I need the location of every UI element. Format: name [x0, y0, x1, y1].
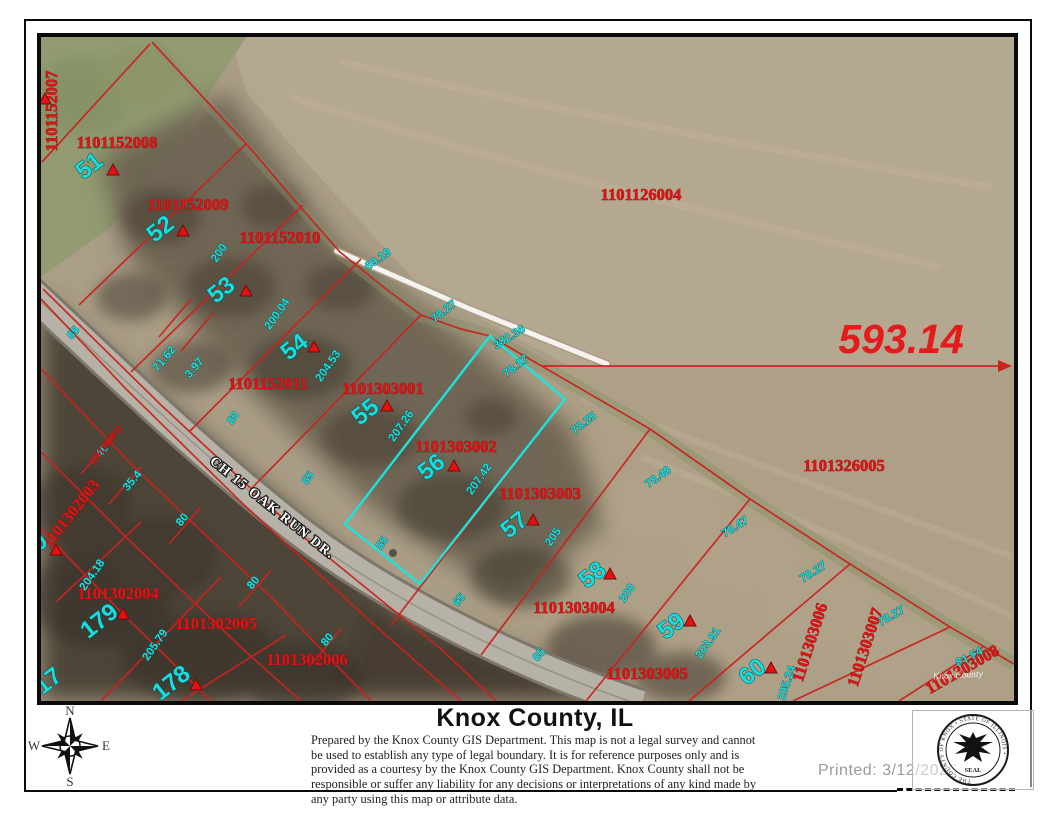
parcel-id-label: 1101302006: [266, 650, 348, 669]
map-viewport[interactable]: 200200.04204.5371.623.97207.26207.422052…: [37, 33, 1018, 705]
compass-east-label: E: [102, 738, 110, 753]
map-print-page: { "map": { "highlight_color": "#19e5dd",…: [0, 0, 1056, 816]
seal-bottom-text: SEAL: [965, 767, 983, 774]
county-seal: THE COUNTY OF KNOX • STATE OF ILLINOIS •…: [935, 712, 1011, 788]
county-seal-box: THE COUNTY OF KNOX • STATE OF ILLINOIS •…: [912, 710, 1034, 790]
parcel-id-label: 1101152011: [228, 374, 308, 393]
parcel-id-label: 1101152010: [240, 228, 321, 247]
parcel-id-label: 1101152009: [148, 195, 229, 214]
big-measurement-label: 593.14: [838, 316, 964, 362]
map-canvas[interactable]: 200200.04204.5371.623.97207.26207.422052…: [41, 37, 1014, 701]
parcel-id-label: 1101303001: [342, 379, 424, 398]
compass-rose: N S E W: [28, 704, 112, 788]
map-title: Knox County, IL: [300, 704, 770, 733]
parcel-id-label: 1101326005: [803, 456, 885, 475]
survey-point-dot: [389, 549, 397, 557]
parcel-id-label: 1101303005: [606, 664, 688, 683]
parcel-id-label: 1101152007: [42, 71, 61, 152]
disclaimer-text: Prepared by the Knox County GIS Departme…: [311, 733, 757, 806]
compass-south-label: S: [66, 774, 73, 788]
parcel-id-label: 1101302004: [77, 584, 159, 603]
parcel-id-label: 1101303003: [499, 484, 581, 503]
parcel-id-label: 1101302005: [175, 614, 257, 633]
compass-north-label: N: [65, 704, 75, 718]
parcel-id-label: 1101303004: [533, 598, 615, 617]
compass-west-label: W: [28, 738, 41, 753]
parcel-id-label: 1101126004: [601, 185, 682, 204]
